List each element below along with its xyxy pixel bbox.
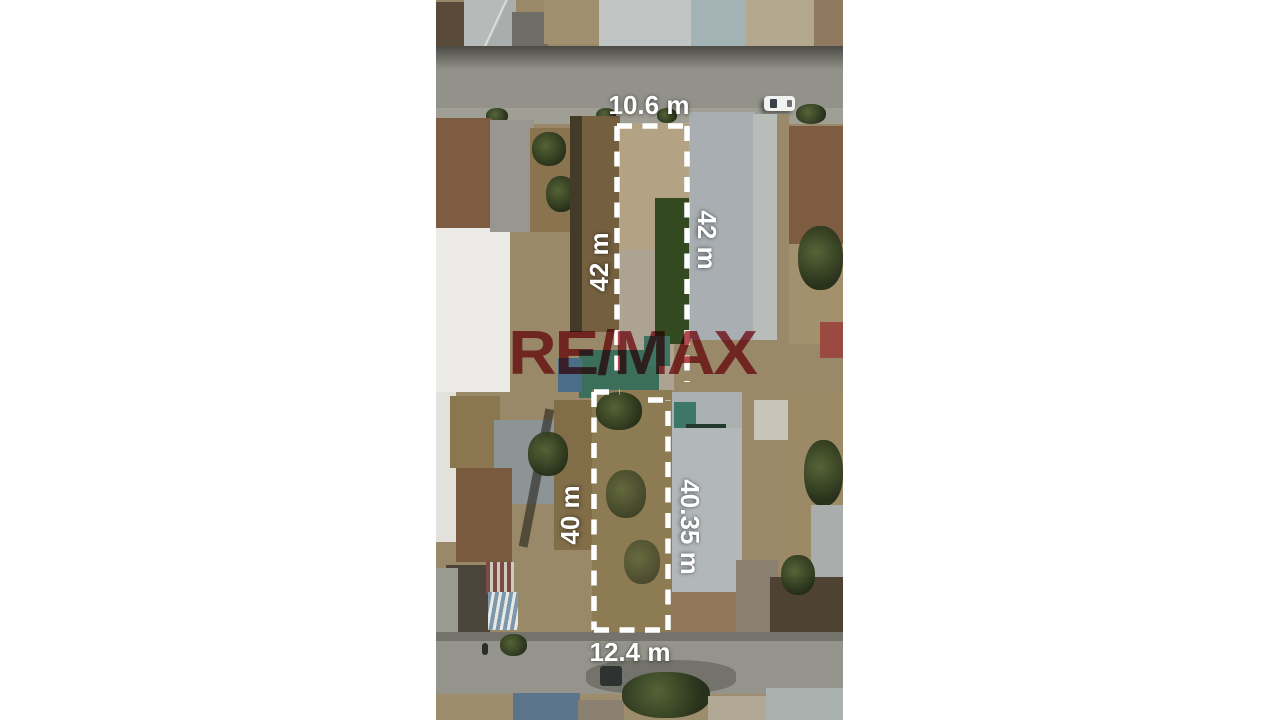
dimension-label-lower-width: 12.4 m (582, 637, 678, 667)
remax-watermark: RE/MAX (481, 318, 783, 388)
dimension-label-upper-right-depth: 42 m (692, 200, 722, 280)
dimension-label-upper-left-depth: 42 m (584, 222, 614, 302)
aerial-photo: RE/MAX 10.6 m 42 m 42 m 40 m 40.35 m 12.… (436, 0, 843, 720)
dimension-label-lower-right-depth: 40.35 m (675, 467, 705, 587)
dimension-label-lower-left-depth: 40 m (555, 475, 585, 555)
screenshot-canvas: RE/MAX 10.6 m 42 m 42 m 40 m 40.35 m 12.… (0, 0, 1280, 720)
dimension-label-upper-width: 10.6 m (596, 90, 702, 120)
